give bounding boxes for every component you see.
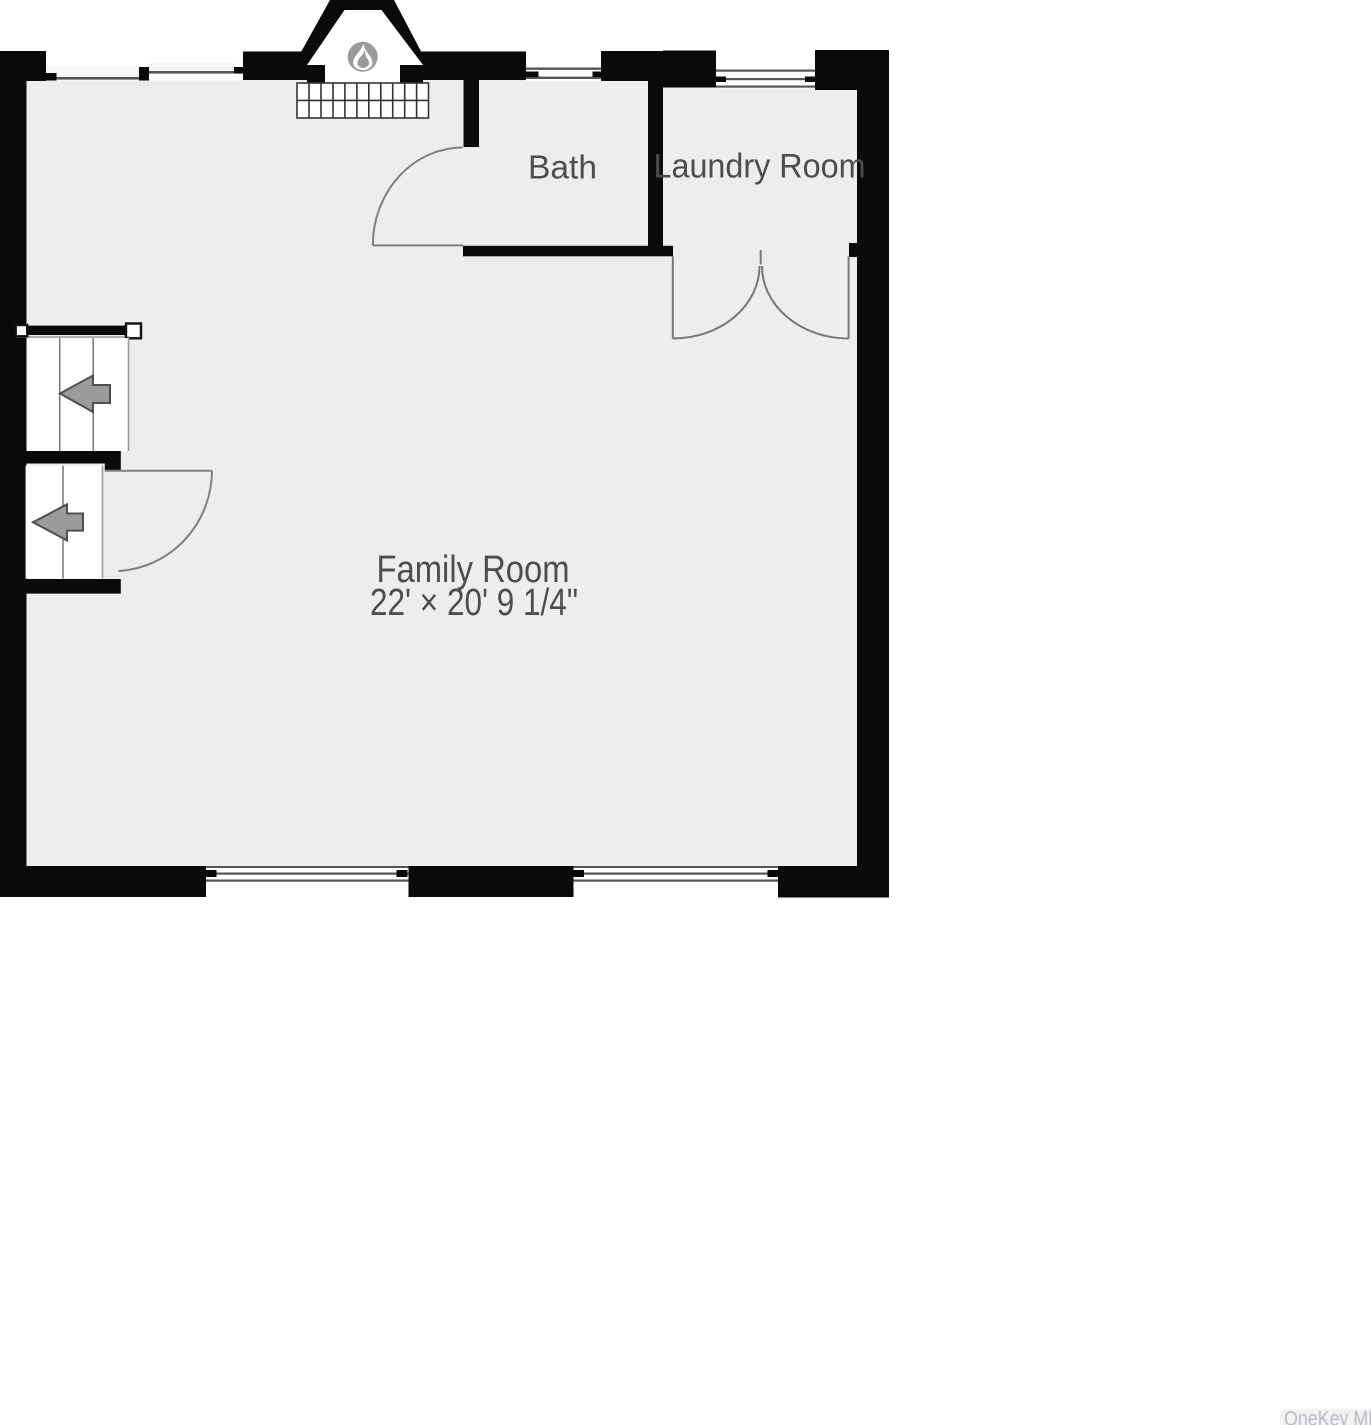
svg-text:Bath: Bath: [528, 149, 597, 186]
svg-text:Laundry Room: Laundry Room: [654, 148, 866, 186]
svg-text:22' × 20' 9 1/4": 22' × 20' 9 1/4": [370, 582, 578, 624]
svg-text:OneKey MLS: OneKey MLS: [1284, 1408, 1371, 1425]
